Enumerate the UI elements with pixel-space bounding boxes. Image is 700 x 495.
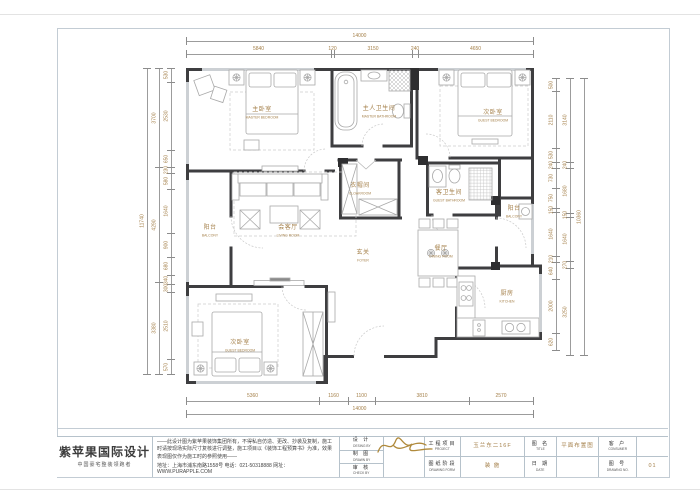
floor-plan-drawing bbox=[186, 68, 542, 384]
disclaimer-block: ——此设计图为紫苹果装饰集团所有，不得私自仿造、更改、抄袭及复制，施工时请按现场… bbox=[153, 437, 340, 477]
field-consumer-label: 客 户 CONSUMER bbox=[598, 437, 636, 457]
field-date-label: 日 期 DATE bbox=[524, 457, 556, 477]
brand-tagline: 中国豪宅整装领跑者 bbox=[77, 461, 131, 468]
brand-name: 紫苹果国际设计 bbox=[59, 446, 150, 459]
label-en: DRAWING FORM bbox=[430, 468, 456, 472]
field-number-label: 图 号 DRAWING NO. bbox=[598, 457, 636, 477]
value-text: 01 bbox=[648, 464, 656, 470]
role-en: DESING BY bbox=[353, 444, 370, 448]
label-en: DATE bbox=[536, 468, 544, 472]
entry-opening bbox=[354, 354, 384, 359]
field-form-label: 图纸阶段 DRAWING FORM bbox=[424, 457, 460, 477]
titleblock-top-rule bbox=[57, 428, 668, 429]
field-date-value bbox=[556, 457, 598, 477]
field-consumer-value bbox=[636, 437, 668, 457]
signature-cell bbox=[384, 437, 424, 477]
value-text: 装 施 bbox=[485, 464, 501, 470]
value-text: 玉兰东二16F bbox=[473, 444, 511, 450]
label-en: CONSUMER bbox=[608, 447, 627, 451]
cloakroom-door bbox=[356, 160, 376, 169]
field-form-value: 装 施 bbox=[460, 457, 524, 477]
label-en: TITLE bbox=[536, 447, 545, 451]
title-block: 紫苹果国际设计 中国豪宅整装领跑者 ——此设计图为紫苹果装饰集团所有，不得私自仿… bbox=[57, 436, 668, 477]
field-number-value: 01 bbox=[636, 457, 668, 477]
fields-table: 工程项目 PROJECT 玉兰东二16F 图 名 TITLE 平面布置图 客 户… bbox=[424, 437, 668, 477]
field-title-value: 平面布置图 bbox=[556, 437, 598, 457]
brand-block: 紫苹果国际设计 中国豪宅整装领跑者 bbox=[57, 437, 153, 477]
role-check: 审 核 CHECK BY bbox=[340, 464, 383, 477]
value-text: 平面布置图 bbox=[561, 444, 594, 450]
label-en: PROJECT bbox=[435, 447, 450, 451]
role-en: CHECK BY bbox=[353, 472, 369, 476]
contact-text: 地址：上海市浦东南路1558号 电话：021-50318888 网址：WWW.P… bbox=[157, 462, 335, 475]
disclaimer-text: ——此设计图为紫苹果装饰集团所有，不得私自仿造、更改、抄袭及复制，施工时请按现场… bbox=[157, 439, 335, 461]
page-top-rule bbox=[0, 14, 700, 15]
field-project-value: 玉兰东二16F bbox=[460, 437, 524, 457]
field-title-label: 图 名 TITLE bbox=[524, 437, 556, 457]
page-bottom-rule bbox=[0, 489, 700, 490]
signature-icon bbox=[372, 430, 442, 460]
label-en: DRAWING NO. bbox=[607, 468, 629, 472]
sheet: { "plan": { "dim_color": "#a5814b", "roo… bbox=[0, 0, 700, 495]
furniture bbox=[192, 70, 539, 376]
role-en: DRAWN BY bbox=[353, 458, 370, 462]
